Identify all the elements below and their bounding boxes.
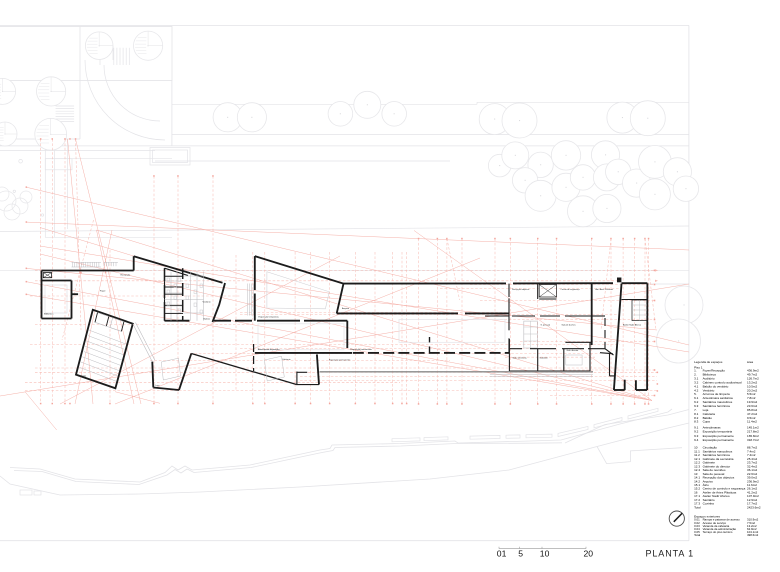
svg-text:S. pessoal: S. pessoal	[541, 325, 551, 327]
svg-text:Total: Total	[694, 505, 701, 509]
svg-text:Copa: Copa	[703, 420, 711, 424]
svg-text:Exposição permanente: Exposição permanente	[703, 438, 734, 442]
svg-text:Auditório: Auditório	[78, 375, 87, 378]
svg-text:Gabinete: Gabinete	[540, 357, 549, 360]
svg-text:Exposição permanente: Exposição permanente	[351, 348, 373, 351]
svg-text:Ate. Artes Plásticas: Ate. Artes Plásticas	[596, 288, 614, 291]
svg-text:Gab. director: Gab. director	[567, 349, 579, 352]
svg-text:Biblioteca: Biblioteca	[44, 313, 54, 316]
svg-text:9.4: 9.4	[694, 438, 699, 442]
svg-text:Legenda de espaços: Legenda de espaços	[694, 360, 723, 364]
svg-text:498.6m2: 498.6m2	[747, 533, 759, 537]
svg-text:Exposição temporária: Exposição temporária	[259, 315, 280, 318]
svg-text:Centro de segurança: Centro de segurança	[561, 288, 581, 291]
svg-text:Cozinha: Cozinha	[703, 502, 714, 506]
svg-text:PLANTA 1: PLANTA 1	[646, 548, 695, 558]
svg-text:5: 5	[518, 548, 523, 558]
svg-text:Recepção: Recepção	[121, 274, 131, 277]
svg-text:20: 20	[584, 548, 594, 558]
svg-text:Exposição permanente: Exposição permanente	[329, 358, 351, 361]
svg-text:01: 01	[497, 548, 507, 558]
svg-text:8.3: 8.3	[694, 420, 699, 424]
svg-text:área: área	[747, 360, 753, 364]
svg-text:Foyer: Foyer	[100, 291, 106, 293]
svg-text:Total: Total	[694, 533, 700, 537]
svg-text:10: 10	[540, 548, 550, 558]
svg-text:Recepção objectos: Recepção objectos	[512, 288, 529, 291]
svg-text:11.4m2: 11.4m2	[747, 420, 757, 424]
svg-text:Gab. secretaria: Gab. secretaria	[513, 357, 528, 360]
svg-text:Terraço do piso técnico: Terraço do piso técnico	[703, 530, 733, 534]
svg-text:Vestiário: Vestiário	[203, 301, 212, 304]
svg-text:Balcão: Balcão	[204, 318, 211, 321]
svg-text:Arquivo: Arquivo	[342, 307, 350, 310]
svg-text:Antecâmara Exposição: Antecâmara Exposição	[258, 348, 280, 351]
svg-text:2423.6m2: 2423.6m2	[747, 505, 761, 509]
svg-text:Sala de duches: Sala de duches	[562, 325, 576, 327]
svg-text:Atelier Nadir Afonso: Atelier Nadir Afonso	[623, 324, 642, 327]
svg-text:Cafetaria: Cafetaria	[282, 358, 291, 361]
svg-text:318.7m2: 318.7m2	[747, 438, 759, 442]
